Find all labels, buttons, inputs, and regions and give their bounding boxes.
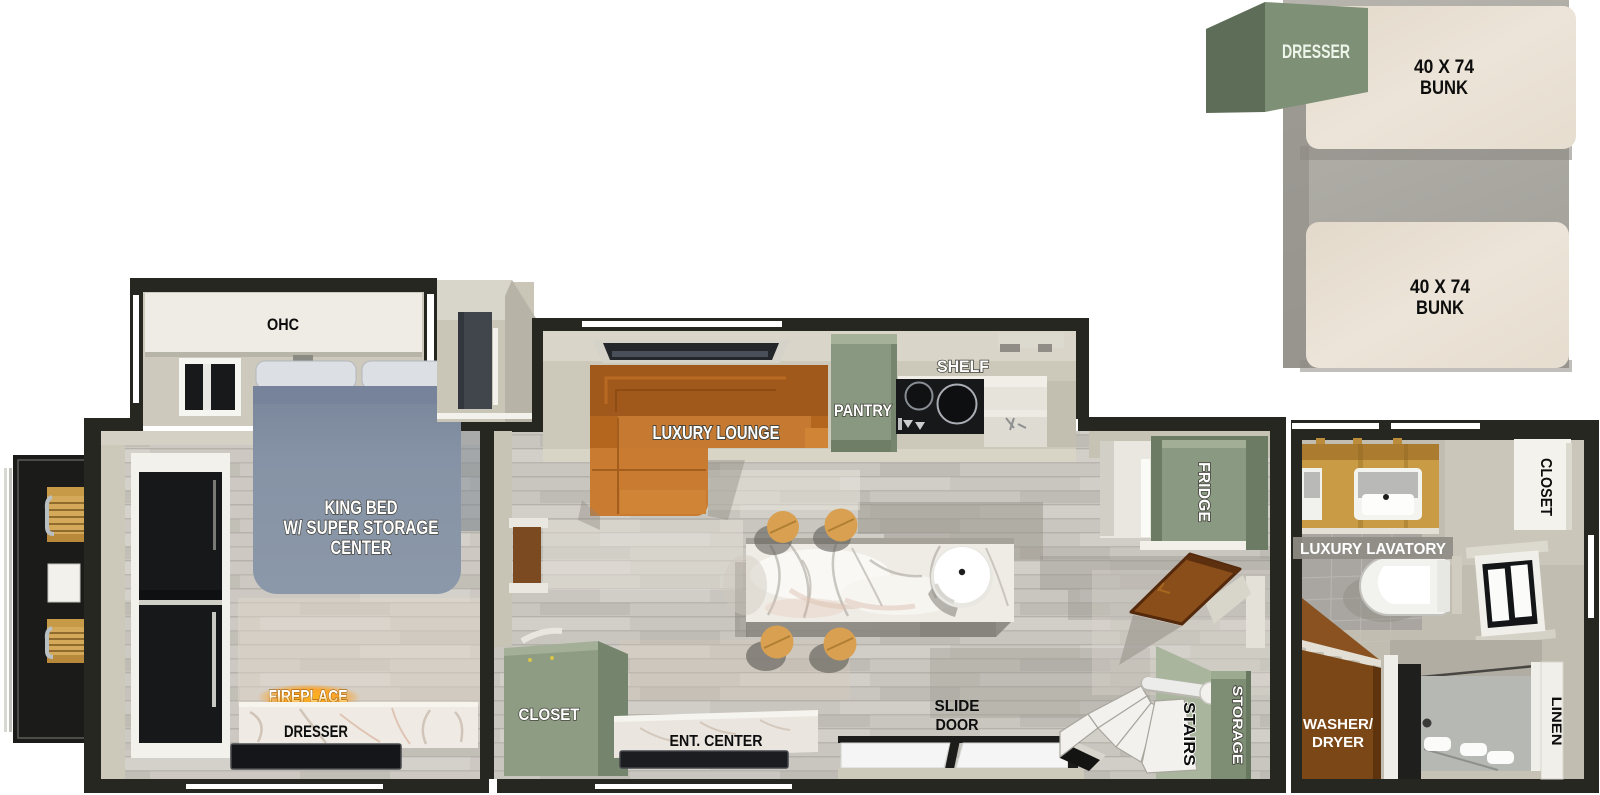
- svg-text:BUNK: BUNK: [1420, 78, 1468, 99]
- svg-text:40 X 74: 40 X 74: [1414, 57, 1474, 78]
- svg-text:CLOSET: CLOSET: [1537, 458, 1554, 516]
- svg-text:LINEN: LINEN: [1549, 697, 1565, 746]
- svg-text:CENTER: CENTER: [331, 538, 392, 559]
- svg-text:DRESSER: DRESSER: [284, 723, 348, 741]
- svg-text:DRYER: DRYER: [1312, 734, 1364, 751]
- svg-text:DRESSER: DRESSER: [1282, 42, 1350, 63]
- svg-text:W/ SUPER STORAGE: W/ SUPER STORAGE: [284, 518, 439, 539]
- svg-text:PANTRY: PANTRY: [834, 402, 892, 420]
- svg-text:FRIDGE: FRIDGE: [1195, 462, 1212, 522]
- svg-text:LUXURY LOUNGE: LUXURY LOUNGE: [653, 423, 780, 443]
- svg-text:STORAGE: STORAGE: [1230, 686, 1246, 765]
- svg-text:STAIRS: STAIRS: [1180, 702, 1197, 766]
- svg-text:BUNK: BUNK: [1416, 298, 1464, 319]
- svg-text:CLOSET: CLOSET: [519, 706, 580, 724]
- svg-text:WASHER/: WASHER/: [1303, 716, 1374, 733]
- svg-text:40 X 74: 40 X 74: [1410, 277, 1470, 298]
- svg-text:LUXURY LAVATORY: LUXURY LAVATORY: [1300, 541, 1447, 558]
- svg-text:ENT. CENTER: ENT. CENTER: [670, 733, 763, 750]
- svg-text:SLIDE: SLIDE: [935, 698, 980, 715]
- svg-text:KING BED: KING BED: [325, 498, 398, 519]
- svg-text:OHC: OHC: [267, 315, 299, 334]
- svg-text:SHELF: SHELF: [937, 358, 989, 376]
- svg-text:DOOR: DOOR: [936, 717, 979, 734]
